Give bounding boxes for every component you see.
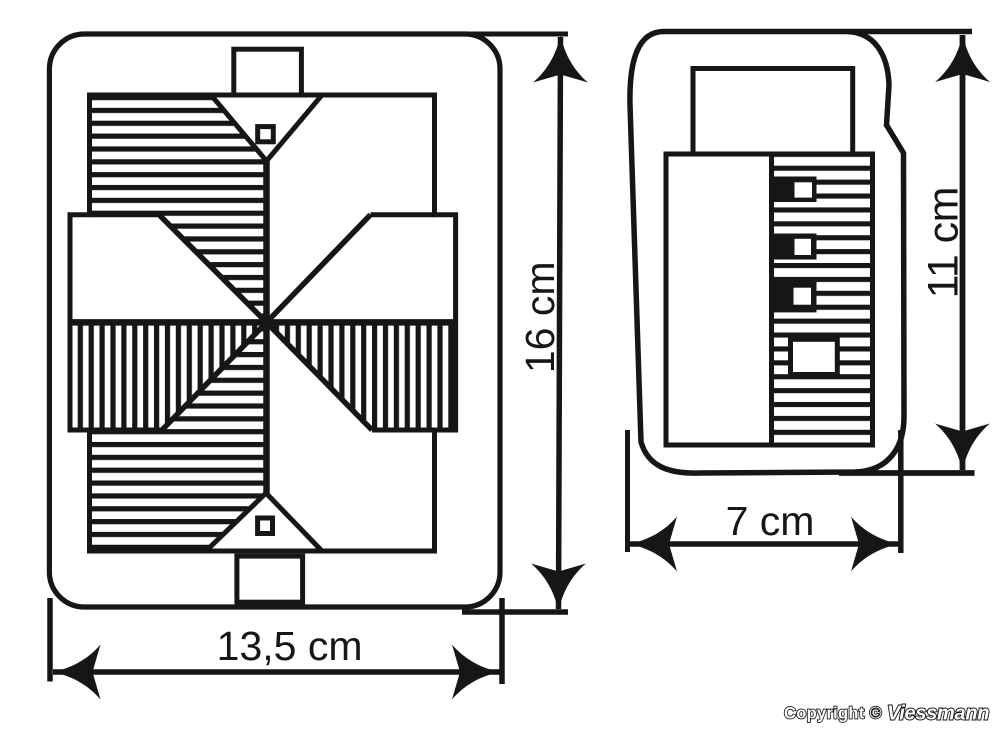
svg-text:11 cm: 11 cm [920, 187, 968, 298]
svg-text:13,5 cm: 13,5 cm [217, 623, 363, 669]
svg-text:Viessmann: Viessmann [887, 703, 989, 725]
svg-text:Copyright ©: Copyright © [784, 705, 882, 723]
svg-text:7 cm: 7 cm [726, 498, 815, 544]
svg-text:16 cm: 16 cm [517, 261, 563, 373]
